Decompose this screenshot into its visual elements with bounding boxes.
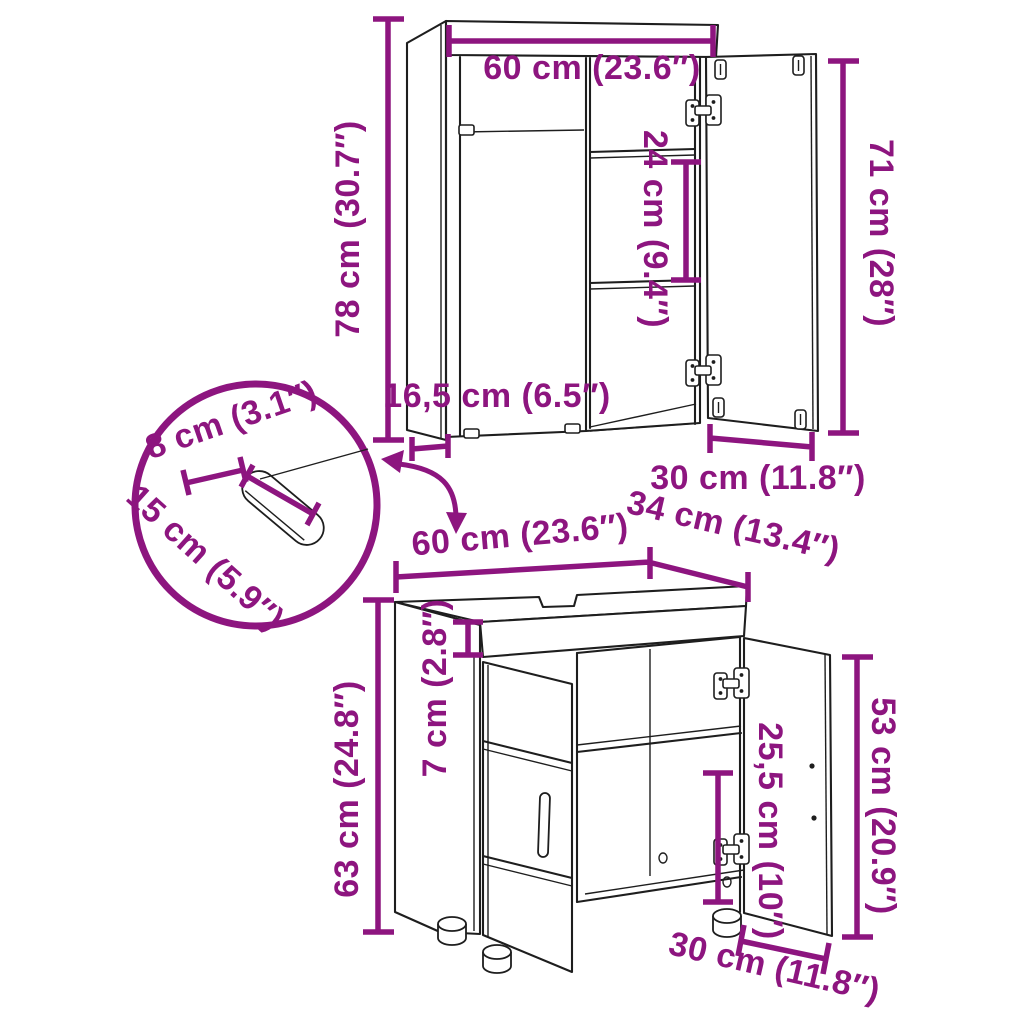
mirror-door-clip [793, 56, 804, 75]
mirror-door-clip [795, 410, 806, 429]
handle-hole [811, 815, 816, 820]
hinge-icon [686, 355, 721, 386]
cabinet-foot [713, 909, 741, 937]
cabinet-foot [438, 917, 466, 945]
dim-line-shelf-spacing [671, 162, 701, 280]
dim-line-bottom-height [363, 600, 394, 932]
mirror-cabinet-open-door [706, 54, 818, 431]
label-top-door-width: 30 cm (11.8″) [650, 459, 866, 497]
cabinet-foot [483, 945, 511, 973]
label-interior-height: 25,5 cm (10″) [751, 722, 789, 939]
dimension-diagram-canvas: 60 cm (23.6″) 78 cm (30.7″) 24 cm (9.4″)… [0, 0, 1024, 1024]
label-bottom-height: 63 cm (24.8″) [328, 680, 366, 897]
label-top-width: 60 cm (23.6″) [483, 49, 700, 87]
sink-cabinet-left-door [483, 662, 572, 972]
hinge-icon [686, 95, 721, 126]
label-top-depth: 16,5 cm (6.5″) [383, 377, 610, 415]
dimension-diagram: 60 cm (23.6″) 78 cm (30.7″) 24 cm (9.4″)… [0, 0, 1024, 1024]
shelf-pin-hole [659, 853, 667, 863]
door-handle [538, 793, 550, 857]
dim-line-top-door-height [828, 61, 859, 433]
label-top-height: 78 cm (30.7″) [329, 120, 367, 337]
label-apron-height: 7 cm (2.8″) [416, 599, 454, 778]
hinge-icon [714, 668, 749, 699]
mirror-door-clip [715, 60, 726, 79]
mirror-door-clip [713, 398, 724, 417]
mirror-clip [459, 125, 474, 135]
label-bottom-door-height: 53 cm (20.9″) [864, 697, 902, 914]
handle-hole [809, 763, 814, 768]
arrowhead-icon [381, 450, 404, 473]
label-top-door-height: 71 cm (28″) [862, 139, 900, 327]
label-bottom-width: 60 cm (23.6″) [410, 507, 630, 564]
label-shelf-spacing: 24 cm (9.4″) [636, 130, 674, 328]
